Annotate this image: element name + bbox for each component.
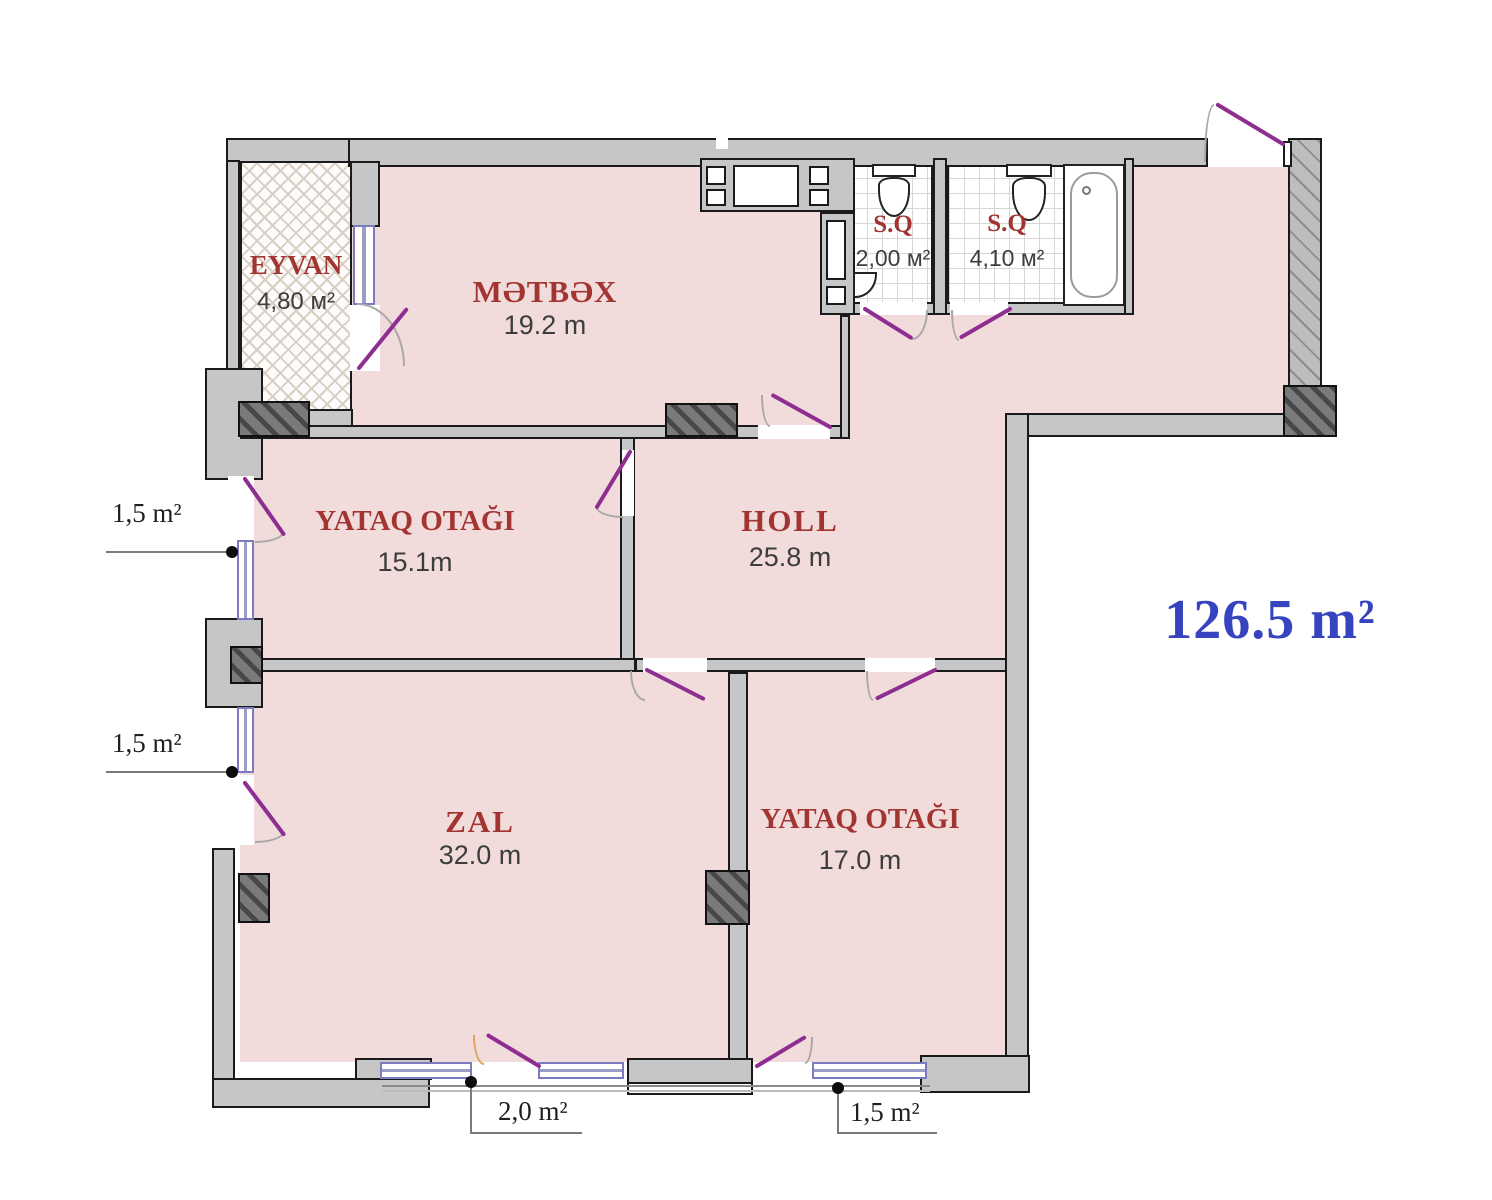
leader-dot xyxy=(226,766,238,778)
annotation-bottom-balcony: 2,0 m² xyxy=(498,1096,568,1127)
wall-bath-right xyxy=(1124,158,1134,315)
leader-dot xyxy=(465,1076,477,1088)
window xyxy=(812,1062,927,1079)
wall-top-balcony xyxy=(226,138,354,163)
floor-plan: EYVAN 4,80 м² MƏTBƏX 19.2 m S.Q 2,00 м² … xyxy=(0,0,1492,1200)
leader-dot xyxy=(226,546,238,558)
room-label-metbex: MƏTBƏX xyxy=(400,274,690,310)
door-opening-bedroom2 xyxy=(865,658,935,672)
room-area-sq1: 2,00 м² xyxy=(843,245,943,272)
wall-bottomleft-vertical xyxy=(212,848,235,1108)
room-area-sq2: 4,10 м² xyxy=(947,245,1067,272)
room-label-sq1: S.Q xyxy=(850,211,936,239)
leader-line xyxy=(837,1132,937,1134)
leader-line xyxy=(837,1092,839,1134)
hall-floor xyxy=(848,315,1130,413)
room-label-yataq1: YATAQ OTAĞI xyxy=(250,505,580,538)
wall-bottomleft-horizontal xyxy=(212,1078,430,1108)
room-area-yataq2: 17.0 m xyxy=(710,845,1010,876)
column xyxy=(1283,385,1337,437)
vent-shaft xyxy=(809,189,829,206)
toilet-icon xyxy=(1006,164,1052,177)
wall-kitchen-hall xyxy=(840,315,850,439)
wall-balcony-right xyxy=(350,161,380,227)
room-label-eyvan: EYVAN xyxy=(240,250,352,281)
bathtub-inner xyxy=(1070,172,1118,298)
room-area-yataq1: 15.1m xyxy=(250,547,580,578)
column xyxy=(230,646,263,684)
window xyxy=(538,1062,624,1079)
leader-line xyxy=(470,1132,582,1134)
wall-topright-hatched xyxy=(1288,138,1322,390)
vent-shaft xyxy=(733,165,799,207)
column xyxy=(238,873,270,923)
room-area-metbex: 19.2 m xyxy=(400,310,690,341)
vent-shaft xyxy=(706,189,726,206)
leader-line xyxy=(106,771,238,773)
column xyxy=(238,401,310,437)
door-leaf-entrance xyxy=(1215,102,1286,147)
leader-line xyxy=(470,1086,472,1134)
vent-shaft xyxy=(826,286,846,305)
balcony-edge-line xyxy=(382,1085,930,1092)
column xyxy=(705,870,750,925)
leader-dot xyxy=(832,1082,844,1094)
window xyxy=(380,1062,472,1079)
room-label-holl: HOLL xyxy=(690,503,890,539)
vent-shaft xyxy=(706,166,726,185)
annotation-bottom-right: 1,5 m² xyxy=(850,1097,920,1128)
room-area-eyvan: 4,80 м² xyxy=(236,288,356,316)
wall-right-vertical xyxy=(1005,413,1029,1063)
door-opening-kitchen xyxy=(758,425,830,439)
wall-notch xyxy=(716,136,728,149)
room-label-zal: ZAL xyxy=(360,804,600,840)
wall-bedroom1-living xyxy=(240,658,636,672)
wall-bottomright-corner xyxy=(920,1055,1030,1093)
bathtub-drain xyxy=(1082,186,1091,195)
column xyxy=(665,403,738,437)
toilet-icon xyxy=(872,164,916,177)
window xyxy=(237,707,254,773)
vent-shaft xyxy=(809,166,829,185)
entry-corridor-floor xyxy=(1130,167,1288,413)
door-arc xyxy=(1204,104,1214,162)
room-area-zal: 32.0 m xyxy=(360,840,600,871)
annotation-left-upper: 1,5 m² xyxy=(112,498,182,529)
room-label-sq2: S.Q xyxy=(947,210,1067,238)
total-area-label: 126.5 m² xyxy=(1110,588,1430,652)
leader-line xyxy=(106,551,238,553)
wall-bottom-middle xyxy=(627,1058,753,1084)
room-label-yataq2: YATAQ OTAĞI xyxy=(710,803,1010,836)
window xyxy=(353,225,375,305)
room-area-holl: 25.8 m xyxy=(690,542,890,573)
wall-balcony-left xyxy=(226,160,240,376)
wall-right-horizontal xyxy=(1005,413,1288,437)
annotation-left-lower: 1,5 m² xyxy=(112,728,182,759)
